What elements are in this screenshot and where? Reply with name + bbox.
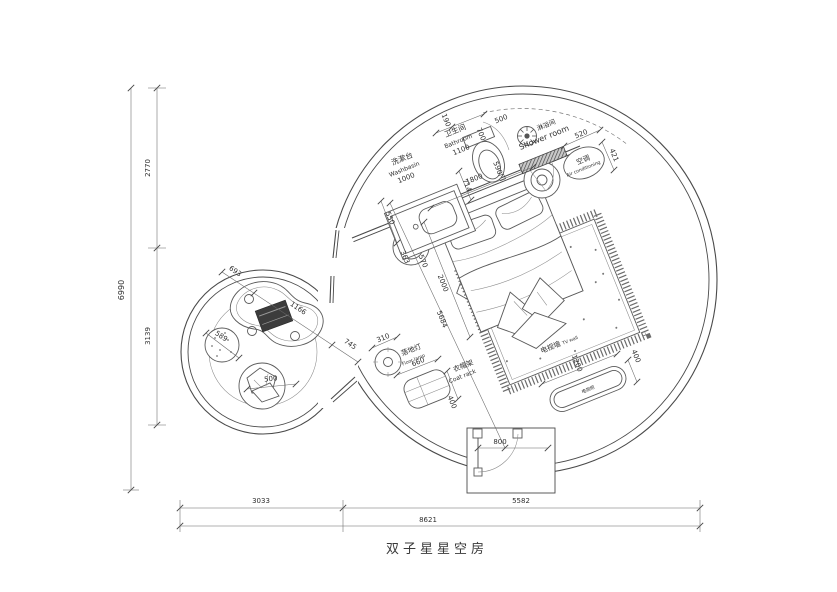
dim-6990: 6990: [117, 280, 126, 300]
dim-1800: 1800: [464, 172, 484, 186]
floor-plan-drawing: 电视柜: [0, 0, 837, 592]
dim-400-tv: 400: [630, 349, 642, 364]
page-title: 双子星星空房: [386, 541, 488, 557]
dim-5582: 5582: [512, 497, 530, 505]
dim-800: 800: [493, 438, 506, 446]
dim-2770: 2770: [144, 159, 152, 177]
dim-3033: 3033: [252, 497, 270, 505]
dim-190: 190: [440, 113, 452, 128]
entry-vestibule: [467, 428, 555, 493]
dim-500-beanbag: 500: [264, 374, 278, 383]
dim-8621: 8621: [419, 516, 437, 524]
door-post-right: [513, 429, 522, 438]
door-post-left: [473, 429, 482, 438]
dim-310: 310: [376, 332, 391, 344]
dim-500-shower: 500: [494, 113, 509, 125]
dim-2000: 2000: [436, 273, 450, 293]
floor-plan-page: 电视柜: [0, 0, 837, 592]
dim-693: 693: [227, 264, 243, 278]
dim-3139: 3139: [144, 327, 152, 345]
floor-lamp-icon: [373, 347, 403, 377]
dim-1200: 1200: [570, 353, 584, 373]
junction-opening: [318, 228, 358, 408]
dim-421: 421: [608, 148, 620, 163]
coat-rack-icon: [401, 367, 453, 411]
tv-cabinet-icon: 电视柜: [546, 363, 629, 415]
dim-5684: 5684: [435, 309, 449, 329]
dim-400-coat: 400: [446, 395, 458, 410]
lounge-desk: [230, 282, 323, 347]
labels: 6990 2770 3139 3033 5582 8621 双子星星空房 洗漱台…: [117, 113, 642, 557]
